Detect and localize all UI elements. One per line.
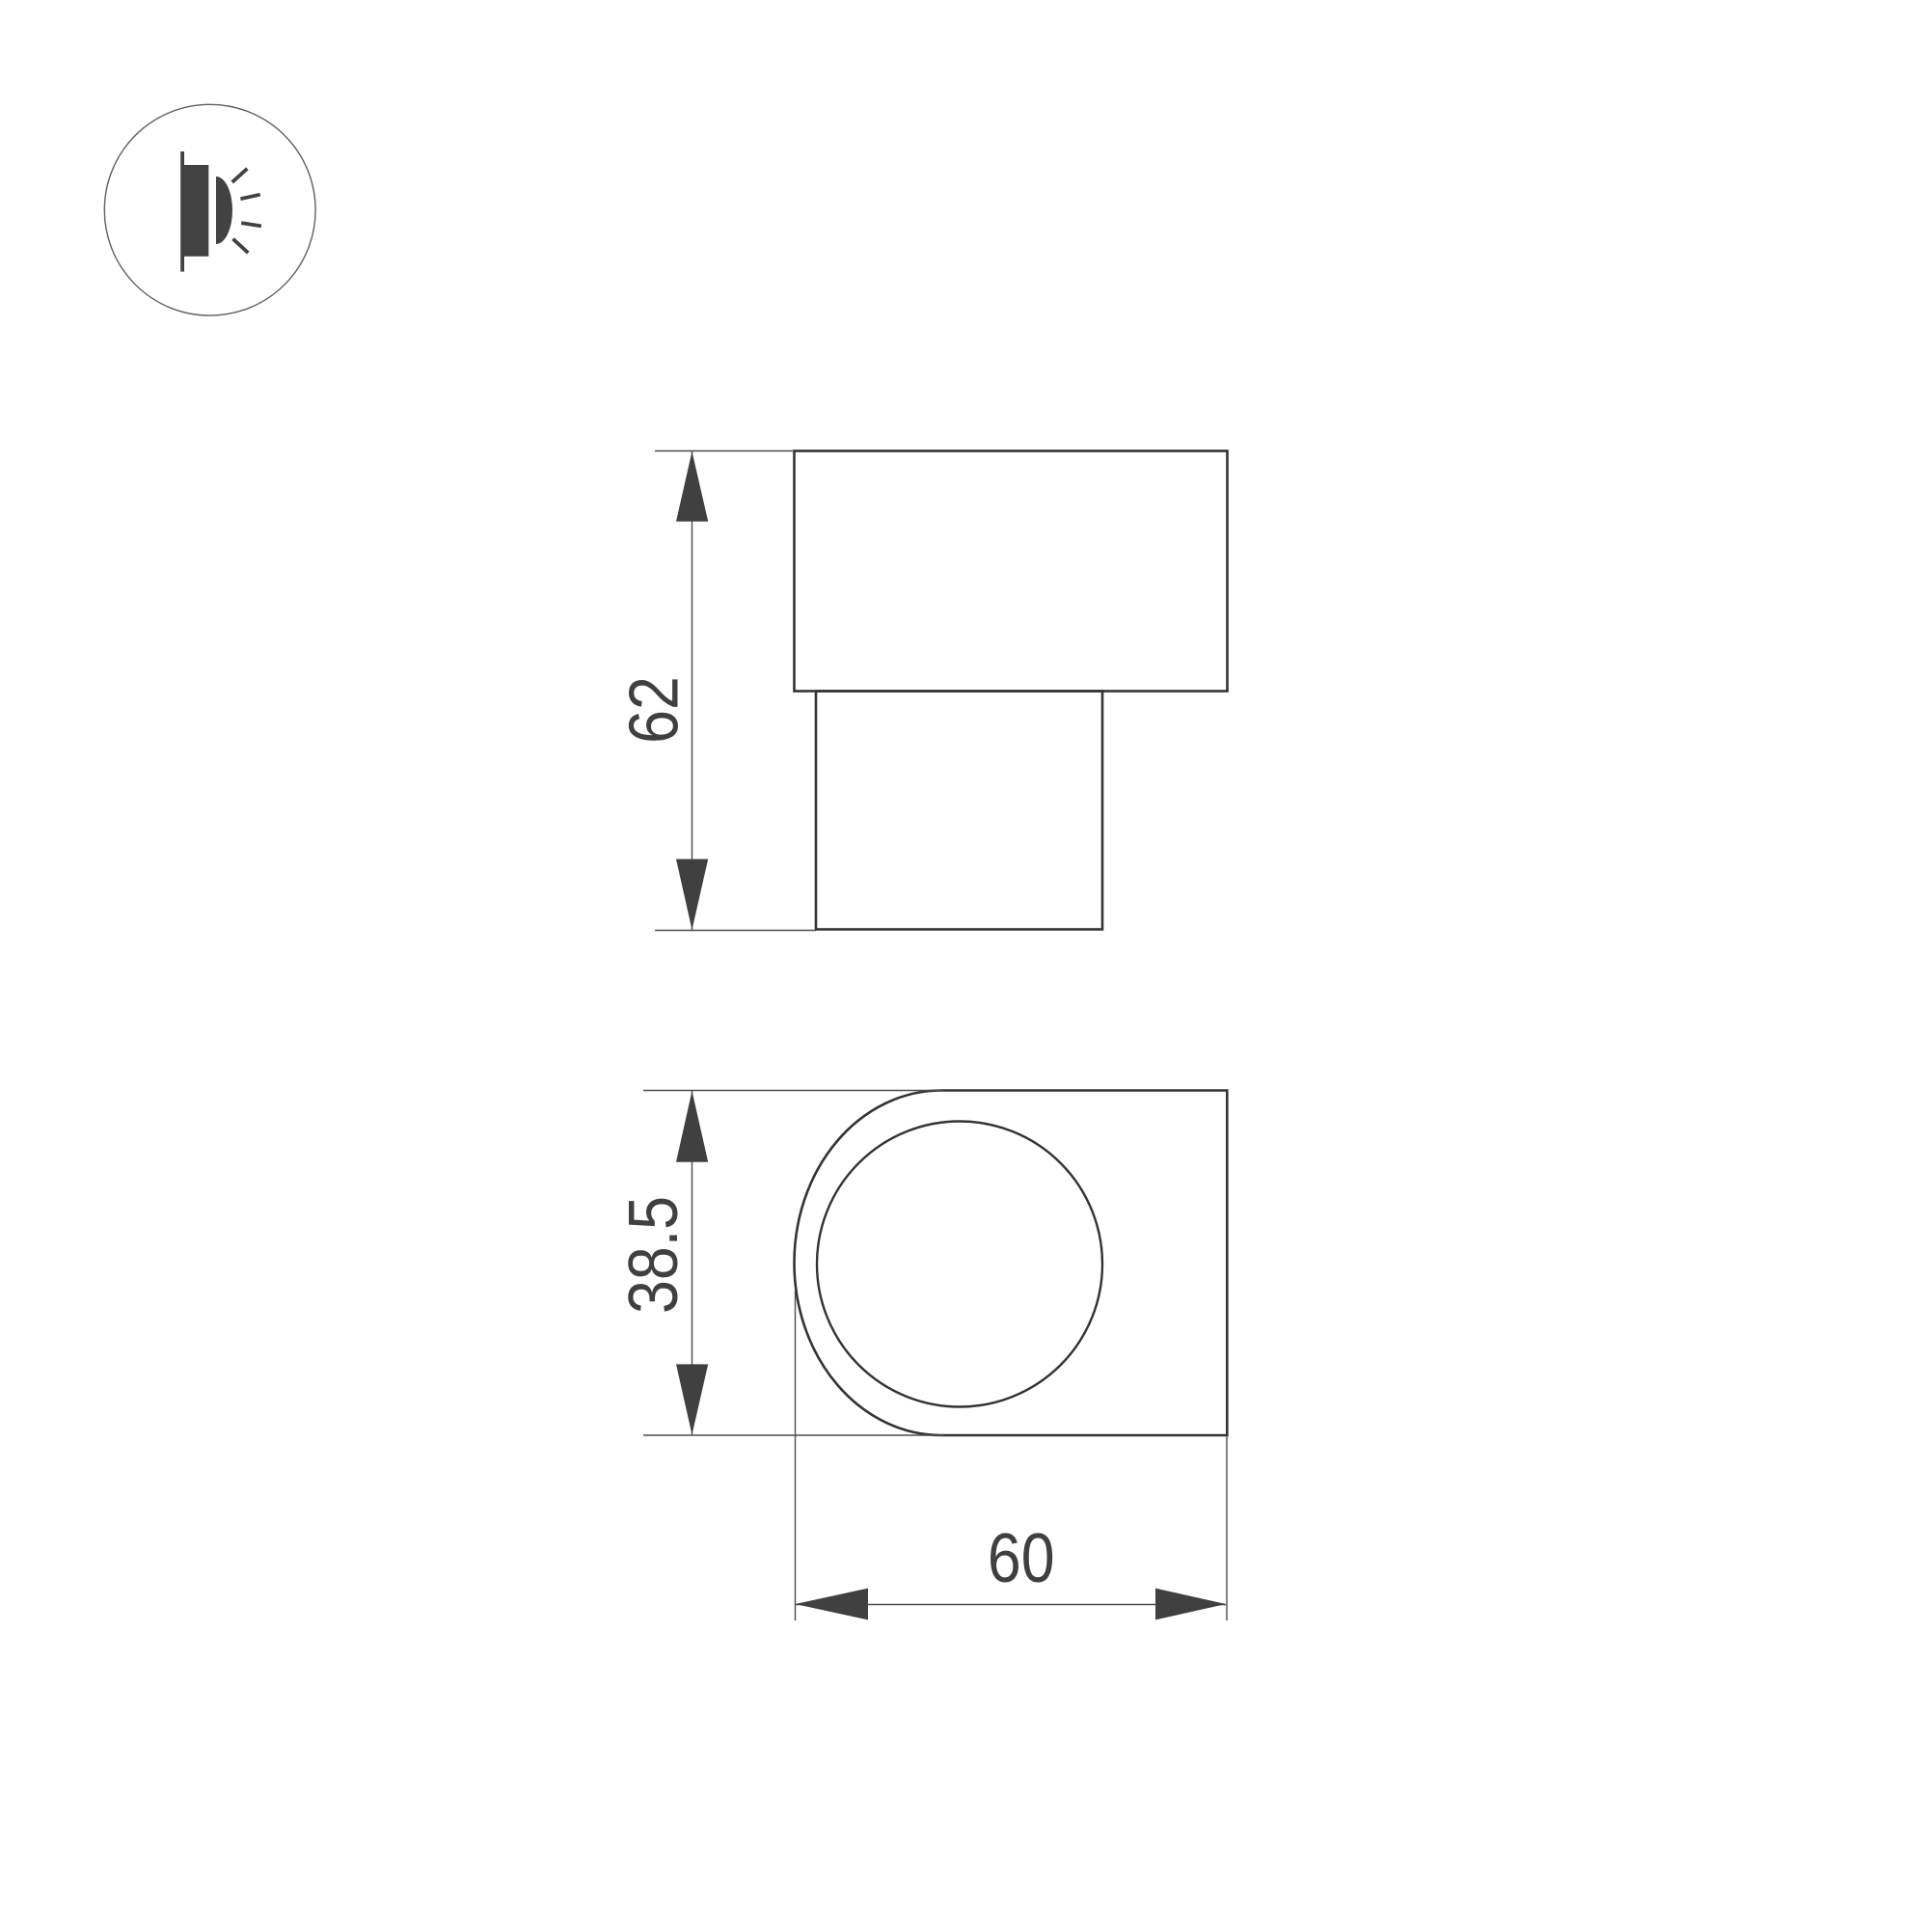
svg-text:62: 62: [615, 676, 692, 744]
svg-text:38.5: 38.5: [615, 1196, 692, 1314]
svg-text:60: 60: [988, 1520, 1055, 1597]
